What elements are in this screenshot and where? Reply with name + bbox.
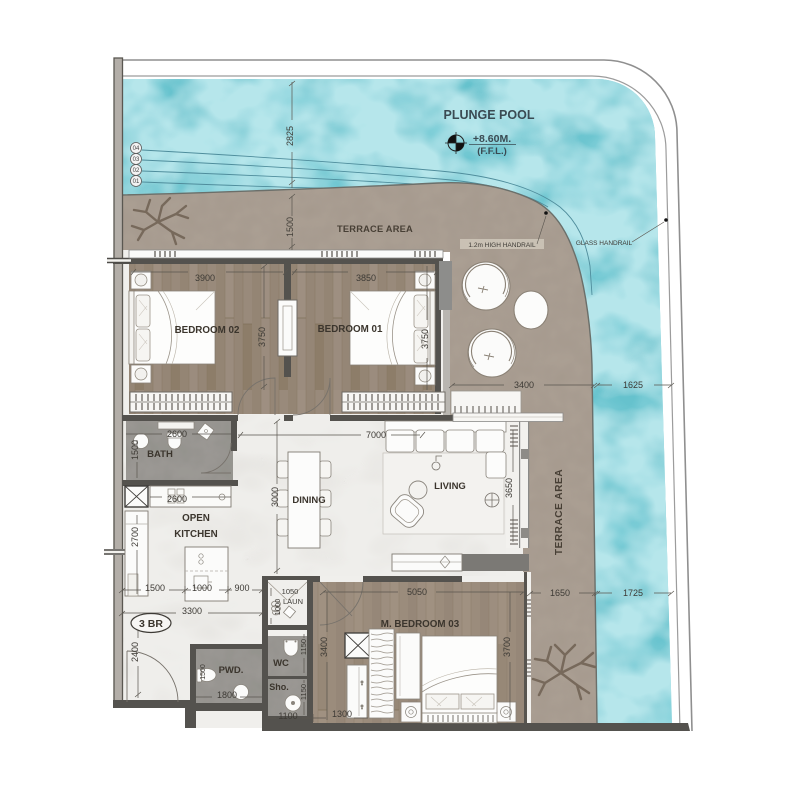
svg-text:1500: 1500 bbox=[130, 440, 140, 460]
svg-text:3900: 3900 bbox=[195, 273, 215, 283]
svg-text:7000: 7000 bbox=[366, 430, 386, 440]
svg-text:M. BEDROOM 03: M. BEDROOM 03 bbox=[381, 619, 460, 630]
svg-text:2700: 2700 bbox=[130, 527, 140, 547]
svg-text:1300: 1300 bbox=[332, 709, 352, 719]
svg-text:2600: 2600 bbox=[167, 494, 187, 504]
svg-text:(F.F.L.): (F.F.L.) bbox=[477, 146, 507, 157]
svg-text:3000: 3000 bbox=[270, 487, 280, 507]
svg-text:GLASS HANDRAIL: GLASS HANDRAIL bbox=[576, 240, 633, 247]
svg-text:1800: 1800 bbox=[217, 690, 237, 700]
svg-text:BATH: BATH bbox=[147, 449, 173, 460]
svg-text:3 BR: 3 BR bbox=[139, 618, 163, 630]
svg-text:TERRACE AREA: TERRACE AREA bbox=[337, 224, 413, 234]
svg-text:DINING: DINING bbox=[292, 495, 325, 506]
svg-text:PLUNGE POOL: PLUNGE POOL bbox=[444, 108, 535, 122]
svg-text:02: 02 bbox=[133, 168, 140, 174]
svg-text:3400: 3400 bbox=[319, 637, 329, 657]
svg-text:2600: 2600 bbox=[167, 429, 187, 439]
svg-text:2825: 2825 bbox=[285, 126, 295, 146]
svg-text:04: 04 bbox=[133, 146, 140, 152]
svg-text:1650: 1650 bbox=[550, 588, 570, 598]
svg-text:900: 900 bbox=[234, 583, 249, 593]
svg-text:3750: 3750 bbox=[420, 329, 430, 349]
svg-text:3700: 3700 bbox=[502, 637, 512, 657]
svg-text:PWD.: PWD. bbox=[219, 665, 244, 676]
svg-text:OPEN: OPEN bbox=[182, 513, 210, 524]
svg-text:3850: 3850 bbox=[356, 273, 376, 283]
svg-text:5050: 5050 bbox=[407, 587, 427, 597]
svg-text:KITCHEN: KITCHEN bbox=[174, 529, 218, 540]
svg-text:3650: 3650 bbox=[504, 478, 514, 498]
svg-text:+8.60M.: +8.60M. bbox=[473, 133, 511, 145]
svg-text:3750: 3750 bbox=[257, 327, 267, 347]
svg-text:3400: 3400 bbox=[514, 380, 534, 390]
svg-text:1150: 1150 bbox=[299, 684, 308, 700]
svg-text:1625: 1625 bbox=[623, 380, 643, 390]
svg-text:BEDROOM 02: BEDROOM 02 bbox=[175, 325, 240, 336]
svg-text:TERRACE AREA: TERRACE AREA bbox=[554, 469, 565, 555]
svg-text:1500: 1500 bbox=[145, 583, 165, 593]
svg-text:1.2m HIGH HANDRAIL: 1.2m HIGH HANDRAIL bbox=[468, 242, 536, 249]
svg-text:1150: 1150 bbox=[299, 639, 308, 655]
svg-text:1000: 1000 bbox=[273, 599, 282, 616]
svg-text:WC: WC bbox=[273, 658, 289, 669]
svg-text:LAUN: LAUN bbox=[283, 597, 303, 606]
svg-text:03: 03 bbox=[133, 157, 140, 163]
svg-text:1500: 1500 bbox=[200, 664, 207, 680]
svg-text:01: 01 bbox=[133, 179, 140, 185]
svg-text:1100: 1100 bbox=[278, 711, 297, 721]
svg-text:LIVING: LIVING bbox=[434, 481, 466, 492]
svg-text:1725: 1725 bbox=[623, 588, 643, 598]
svg-text:1500: 1500 bbox=[285, 217, 295, 237]
svg-text:2400: 2400 bbox=[130, 642, 140, 662]
svg-text:BEDROOM 01: BEDROOM 01 bbox=[318, 324, 383, 335]
svg-text:Sho.: Sho. bbox=[269, 682, 289, 692]
svg-text:1050: 1050 bbox=[282, 587, 299, 596]
svg-text:1000: 1000 bbox=[192, 583, 212, 593]
svg-text:3300: 3300 bbox=[182, 606, 202, 616]
